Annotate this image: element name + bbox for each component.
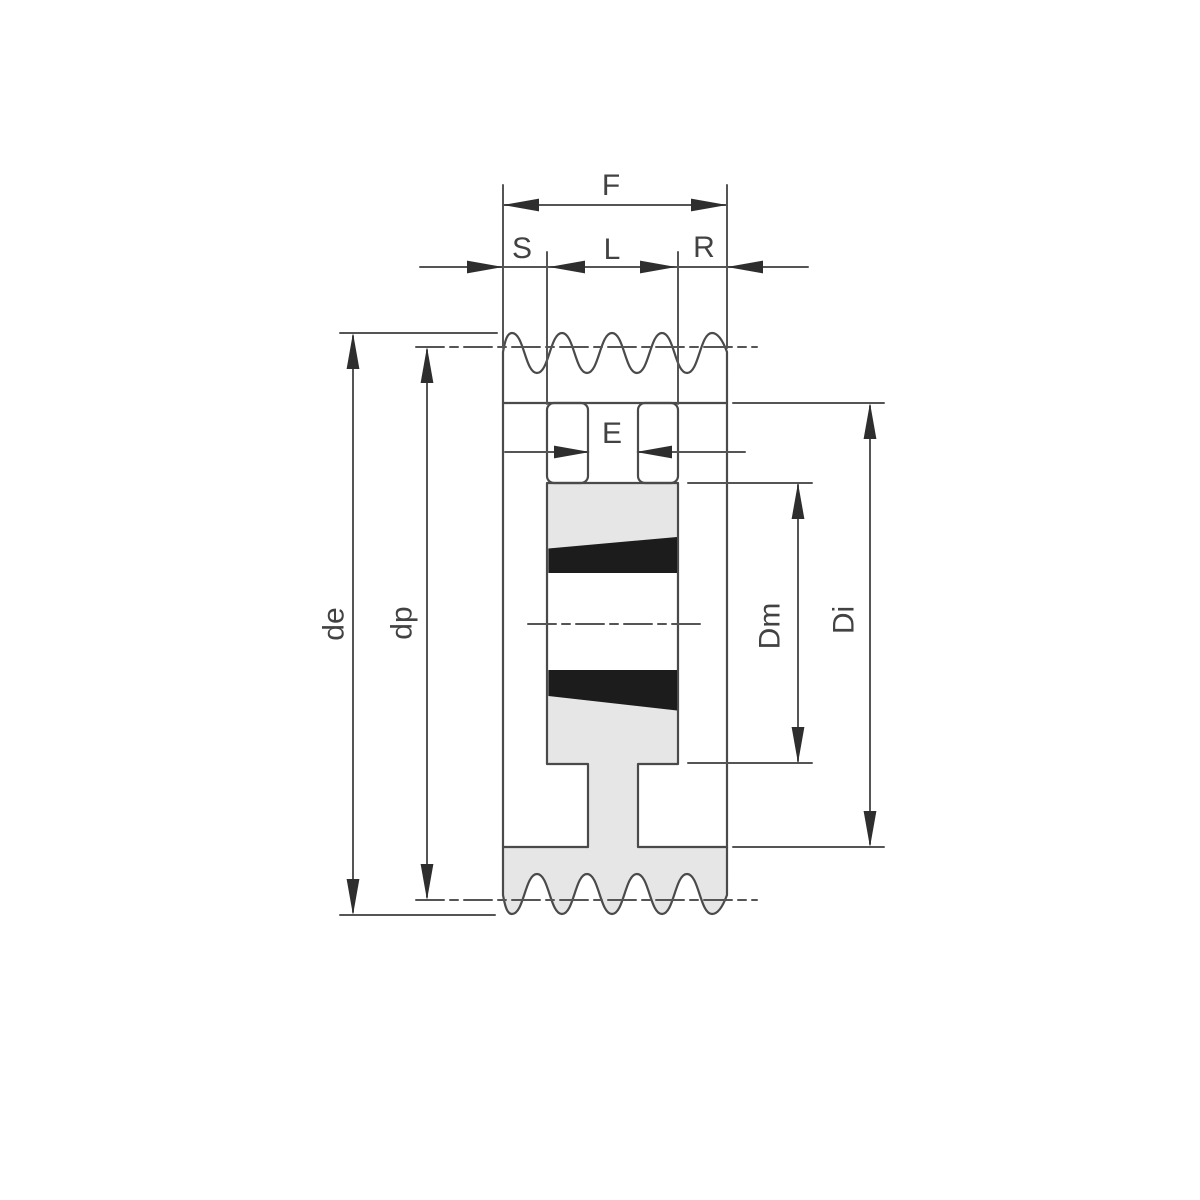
label-dp: dp	[386, 606, 419, 639]
pulley-dimension-drawing: F S L R E de dp D	[0, 0, 1200, 1200]
bore-opening	[548, 571, 676, 672]
flange-notch-left	[547, 403, 588, 483]
r-arrow-outer	[727, 261, 763, 274]
e-arrow-right	[636, 446, 672, 459]
flange-notch-right	[638, 403, 678, 483]
label-e: E	[602, 417, 622, 450]
dp-arrow-bottom	[421, 864, 434, 900]
f-arrow-left	[503, 199, 539, 212]
dp-arrow-top	[421, 347, 434, 383]
s-arrow-outer	[467, 261, 503, 274]
l-arrow-right	[640, 261, 676, 274]
di-arrow-top	[864, 403, 877, 439]
de-arrow-bottom	[347, 879, 360, 915]
label-di: Di	[828, 606, 861, 634]
label-s: S	[512, 232, 532, 265]
dimension-slr: S L R	[420, 231, 808, 404]
dimension-e: E	[505, 417, 745, 458]
de-arrow-top	[347, 333, 360, 369]
de-extension-lines	[340, 333, 497, 915]
label-de: de	[318, 607, 351, 640]
label-dm: Dm	[754, 603, 787, 650]
label-r: R	[693, 231, 715, 264]
l-arrow-left	[549, 261, 585, 274]
label-l: L	[604, 233, 621, 266]
f-arrow-right	[691, 199, 727, 212]
label-f: F	[602, 169, 620, 202]
dm-arrow-bottom	[792, 727, 805, 763]
dimension-dm: Dm	[688, 483, 812, 763]
e-arrow-left	[554, 446, 590, 459]
di-arrow-bottom	[864, 811, 877, 847]
dm-arrow-top	[792, 483, 805, 519]
slr-extension-lines	[547, 252, 678, 404]
dm-extension-lines	[688, 483, 812, 763]
technical-drawing-canvas: F S L R E de dp D	[0, 0, 1200, 1200]
top-groove-rim	[503, 333, 727, 403]
